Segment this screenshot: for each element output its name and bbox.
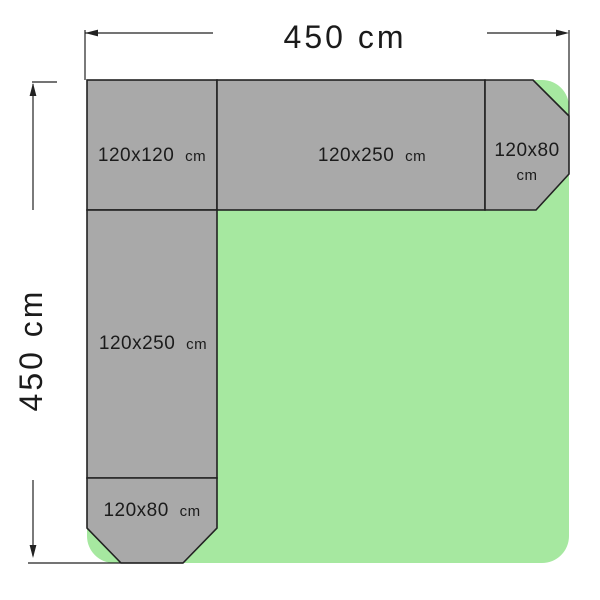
label-right-end-size: 120x80 bbox=[494, 140, 559, 161]
label-right-end-unit: cm bbox=[517, 167, 538, 184]
left-dimension-label: 450 cm bbox=[13, 289, 49, 412]
label-top-rectangle-size: 120x250 bbox=[318, 145, 394, 166]
top-dimension-label: 450 cm bbox=[284, 19, 407, 55]
label-left-rectangle-size: 120x250 bbox=[99, 333, 175, 354]
label-top-left-square: 120x120 cm bbox=[98, 145, 206, 166]
label-left-rectangle-unit: cm bbox=[186, 336, 207, 353]
label-top-left-square-size: 120x120 bbox=[98, 145, 174, 166]
arrow-left-icon bbox=[85, 30, 98, 37]
label-top-rectangle-unit: cm bbox=[405, 148, 426, 165]
label-top-rectangle: 120x250 cm bbox=[318, 145, 426, 166]
arrow-right-icon bbox=[556, 30, 569, 37]
label-bottom-end-unit: cm bbox=[180, 503, 201, 520]
arrow-down-icon bbox=[30, 545, 37, 558]
layout-diagram-page: 450 cm 450 cm 120x120 cm 120x250 cm 120x… bbox=[0, 0, 600, 600]
arrow-up-icon bbox=[30, 83, 37, 96]
label-bottom-end: 120x80 cm bbox=[103, 500, 200, 521]
label-left-rectangle: 120x250 cm bbox=[99, 333, 207, 354]
label-top-left-square-unit: cm bbox=[185, 148, 206, 165]
label-bottom-end-size: 120x80 bbox=[103, 500, 168, 521]
layout-diagram: 450 cm 450 cm 120x120 cm 120x250 cm 120x… bbox=[0, 0, 600, 600]
